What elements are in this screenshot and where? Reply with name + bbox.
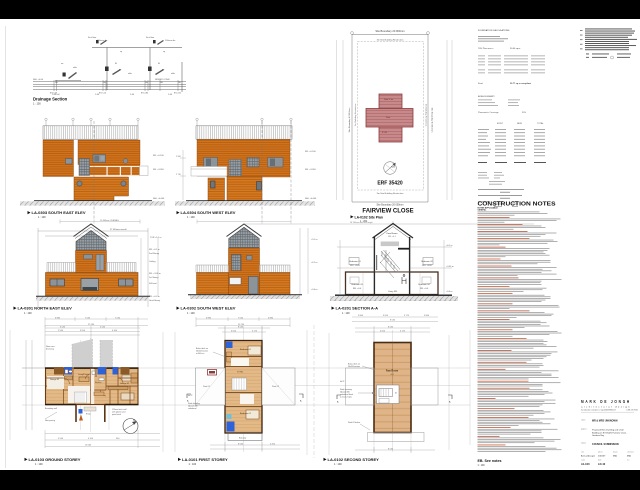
svg-text:Ceiling: Ceiling bbox=[149, 261, 156, 263]
svg-text:NGL +0.00: NGL +0.00 bbox=[33, 79, 44, 81]
svg-text:LA-0302 SOUTH WEST ELEV: LA-0302 SOUTH WEST ELEV bbox=[181, 306, 236, 311]
svg-text:TOR +9.1 m: TOR +9.1 m bbox=[150, 237, 162, 239]
svg-text:+6.1: +6.1 bbox=[390, 374, 394, 376]
svg-text:Kitchen: Kitchen bbox=[95, 381, 101, 384]
svg-text:Gordons Bay: Gordons Bay bbox=[592, 434, 605, 437]
svg-text:27 030: 27 030 bbox=[88, 324, 95, 326]
svg-text:Roof 02: Roof 02 bbox=[272, 386, 280, 388]
svg-text:date: date bbox=[598, 458, 601, 461]
svg-text:NGL +0.000: NGL +0.000 bbox=[305, 198, 317, 200]
svg-text:+9.1 m: +9.1 m bbox=[311, 239, 318, 241]
svg-text:A: A bbox=[449, 401, 451, 404]
svg-text:fall 2°: fall 2° bbox=[188, 395, 193, 397]
svg-text:FAIRVIEW CLOSE: FAIRVIEW CLOSE bbox=[362, 209, 413, 215]
svg-text:Site Boundary 43 910mm: Site Boundary 43 910mm bbox=[348, 107, 351, 132]
svg-text:NGL +0.000: NGL +0.000 bbox=[153, 198, 165, 200]
svg-text:N45: N45 bbox=[391, 167, 396, 169]
svg-text:Balcony: Balcony bbox=[239, 438, 246, 440]
svg-text:RE: RE bbox=[55, 82, 59, 84]
svg-text:wc: wc bbox=[119, 69, 122, 71]
svg-text:Living/Dining: Living/Dining bbox=[78, 374, 89, 376]
svg-text:8 530: 8 530 bbox=[238, 443, 244, 445]
svg-text:N: N bbox=[133, 418, 135, 422]
svg-text:A: A bbox=[300, 400, 302, 403]
svg-text:3 860: 3 860 bbox=[358, 315, 364, 317]
svg-text:IE: IE bbox=[158, 63, 161, 65]
svg-text:job no: job no bbox=[597, 451, 603, 453]
svg-text:FFL +3.05: FFL +3.05 bbox=[350, 265, 360, 267]
svg-text:FFL +6.1 m: FFL +6.1 m bbox=[149, 249, 160, 251]
svg-text:7 030: 7 030 bbox=[85, 317, 91, 319]
svg-text:4 100: 4 100 bbox=[112, 330, 118, 332]
svg-text:10 343mm OVERALL: 10 343mm OVERALL bbox=[100, 219, 120, 222]
svg-text:whb: whb bbox=[73, 67, 78, 69]
svg-text:+3.05 m: +3.05 m bbox=[446, 266, 454, 268]
svg-text:Boundary wall: Boundary wall bbox=[45, 407, 57, 410]
svg-text:t. 083 270 9516: t. 083 270 9516 bbox=[626, 409, 638, 412]
svg-text:30.00 sq.m: 30.00 sq.m bbox=[510, 48, 521, 50]
svg-text:2 540: 2 540 bbox=[58, 330, 64, 332]
svg-text:vp: vp bbox=[163, 51, 166, 53]
svg-text:FFL +0.0 m: FFL +0.0 m bbox=[149, 296, 160, 298]
svg-text:A1 Landscape: A1 Landscape bbox=[581, 455, 596, 458]
svg-text:LA-0102 SECOND STOREY: LA-0102 SECOND STOREY bbox=[328, 457, 380, 462]
svg-text:to manuf spec: to manuf spec bbox=[340, 396, 352, 399]
svg-text:whb: whb bbox=[171, 73, 176, 75]
svg-text:New paving: New paving bbox=[45, 420, 55, 422]
svg-text:1 : 100: 1 : 100 bbox=[189, 463, 197, 466]
svg-text:IE 14.80: IE 14.80 bbox=[141, 93, 148, 95]
svg-text:4 100: 4 100 bbox=[88, 438, 94, 440]
svg-text:+0.0 m: +0.0 m bbox=[311, 289, 318, 291]
svg-text:Garage 01: Garage 01 bbox=[50, 378, 59, 381]
svg-text:+6.1 m: +6.1 m bbox=[446, 245, 453, 247]
svg-text:First floor: First floor bbox=[88, 36, 97, 39]
svg-text:EB. See notes: EB. See notes bbox=[478, 459, 502, 463]
svg-text:100157: 100157 bbox=[598, 456, 606, 458]
svg-text:Building on Erf 35420 Fairview: Building on Erf 35420 Fairview Close, bbox=[592, 431, 627, 434]
svg-text:6 880: 6 880 bbox=[55, 317, 61, 319]
svg-text:LA-0101 FIRST STOREY: LA-0101 FIRST STOREY bbox=[182, 457, 228, 462]
svg-text:project: project bbox=[581, 428, 587, 431]
svg-text:3 175: 3 175 bbox=[400, 330, 406, 332]
svg-text:1 : 100: 1 : 100 bbox=[187, 216, 195, 219]
svg-text:8 530: 8 530 bbox=[382, 132, 388, 134]
svg-text:Roof 01: Roof 01 bbox=[203, 386, 211, 388]
svg-text:A: A bbox=[337, 401, 339, 404]
svg-text:3 050: 3 050 bbox=[80, 330, 86, 332]
svg-text:1:60: 1:60 bbox=[130, 94, 135, 96]
svg-text:1 : 100: 1 : 100 bbox=[33, 103, 41, 106]
svg-text:FFL +3.05 m: FFL +3.05 m bbox=[149, 273, 161, 275]
svg-text:wc: wc bbox=[162, 69, 165, 71]
svg-text:drawn: drawn bbox=[613, 450, 618, 453]
svg-text:MdJ: MdJ bbox=[613, 456, 617, 458]
svg-text:paint finish: paint finish bbox=[112, 413, 121, 416]
svg-text:SEWER CONN: SEWER CONN bbox=[155, 79, 170, 81]
svg-text:5 540: 5 540 bbox=[58, 438, 64, 440]
svg-text:Entry: Entry bbox=[86, 413, 90, 416]
svg-text:First floor: First floor bbox=[146, 36, 155, 39]
svg-text:vp: vp bbox=[120, 51, 123, 53]
svg-text:3m Site Building Restriction: 3m Site Building Restriction bbox=[377, 39, 405, 42]
svg-text:FFL +6.100: FFL +6.100 bbox=[153, 155, 164, 157]
svg-text:8 530: 8 530 bbox=[238, 326, 244, 328]
svg-text:size: size bbox=[581, 451, 584, 453]
svg-text:1st Storey: 1st Storey bbox=[149, 276, 159, 279]
svg-text:3 175: 3 175 bbox=[404, 315, 410, 317]
svg-text:status: status bbox=[581, 442, 586, 445]
svg-text:IE: IE bbox=[115, 63, 118, 65]
svg-text:NEW: NEW bbox=[517, 123, 522, 125]
svg-text:7 030: 7 030 bbox=[238, 317, 244, 319]
svg-text:Planametric Coverage: Planametric Coverage bbox=[478, 111, 499, 114]
svg-text:Bedroom 01: Bedroom 01 bbox=[240, 349, 252, 351]
svg-text:FFL +3.050: FFL +3.050 bbox=[305, 169, 316, 171]
svg-text:checked: checked bbox=[627, 451, 633, 453]
svg-text:t/a sebastian concepts cc reg: t/a sebastian concepts cc reg 2004/09363… bbox=[581, 409, 616, 412]
svg-text:FFL +3.050: FFL +3.050 bbox=[153, 169, 164, 171]
svg-text:A1-100: A1-100 bbox=[581, 462, 590, 466]
svg-text:IE 15.10: IE 15.10 bbox=[99, 93, 106, 95]
svg-text:Final:: Final: bbox=[478, 83, 484, 85]
svg-text:6 540: 6 540 bbox=[60, 326, 66, 328]
svg-text:3 050: 3 050 bbox=[380, 330, 386, 332]
svg-text:27 030mm overall: 27 030mm overall bbox=[110, 228, 127, 231]
svg-text:architectural design: architectural design bbox=[581, 405, 631, 408]
svg-text:Proposed New Dwelling and smal: Proposed New Dwelling and small bbox=[592, 429, 624, 432]
svg-text:FFL +6.1: FFL +6.1 bbox=[388, 236, 396, 238]
svg-text:FFL +0.0: FFL +0.0 bbox=[420, 288, 429, 290]
svg-text:3 050: 3 050 bbox=[231, 330, 237, 332]
svg-text:3 200: 3 200 bbox=[270, 443, 276, 445]
svg-text:16 060: 16 060 bbox=[85, 445, 92, 447]
svg-text:FFL +6.100: FFL +6.100 bbox=[305, 151, 316, 153]
svg-text:1 : 100: 1 : 100 bbox=[342, 312, 350, 315]
svg-text:MR & MRS UNKNOWN: MR & MRS UNKNOWN bbox=[592, 420, 618, 423]
svg-text:26 130mm max roof height: 26 130mm max roof height bbox=[350, 221, 373, 224]
svg-text:whb: whb bbox=[128, 73, 133, 75]
svg-text:fall 2°: fall 2° bbox=[340, 381, 345, 383]
svg-text:8 530: 8 530 bbox=[388, 326, 394, 328]
svg-text:FFL +3.05: FFL +3.05 bbox=[422, 265, 432, 267]
svg-text:LA-0301 NORTH EAST ELEV: LA-0301 NORTH EAST ELEV bbox=[18, 306, 73, 311]
svg-text:Site Boundary 20 000mm: Site Boundary 20 000mm bbox=[375, 29, 404, 33]
svg-text:Bedroom 02: Bedroom 02 bbox=[421, 260, 433, 263]
svg-text:70% Plan area =: 70% Plan area = bbox=[478, 47, 494, 50]
svg-text:Bedroom 02: Bedroom 02 bbox=[240, 413, 252, 415]
svg-text:2nd Storey: 2nd Storey bbox=[149, 252, 160, 255]
svg-text:7 030: 7 030 bbox=[115, 317, 121, 319]
svg-text:client: client bbox=[581, 419, 586, 422]
svg-text:driveway: driveway bbox=[46, 349, 54, 351]
svg-text:at 600 crs: at 600 crs bbox=[196, 352, 204, 355]
svg-text:FFL +0.0: FFL +0.0 bbox=[353, 288, 362, 290]
svg-text:1 : 100: 1 : 100 bbox=[478, 465, 486, 467]
svg-text:rev: rev bbox=[627, 458, 630, 461]
svg-text:RE: RE bbox=[178, 82, 182, 84]
svg-text:MARK DE JONGH: MARK DE JONGH bbox=[581, 399, 631, 404]
svg-text:3m Site Building Restriction: 3m Site Building Restriction bbox=[377, 192, 405, 195]
svg-text:Grnd Storey: Grnd Storey bbox=[149, 299, 161, 302]
svg-text:MdJ: MdJ bbox=[627, 456, 631, 458]
svg-text:ERF 35420: ERF 35420 bbox=[377, 181, 403, 187]
svg-text:1 : 100: 1 : 100 bbox=[334, 463, 342, 466]
svg-text:COUNCIL SUBMISSION: COUNCIL SUBMISSION bbox=[592, 443, 619, 446]
svg-text:LD-10: LD-10 bbox=[598, 462, 606, 466]
svg-text:GENERAL: GENERAL bbox=[478, 209, 488, 212]
svg-text:Fam Room: Fam Room bbox=[387, 233, 398, 235]
svg-text:100mm dia: 100mm dia bbox=[165, 40, 176, 42]
svg-text:scale: scale bbox=[581, 459, 585, 461]
svg-text:Bedroom 01: Bedroom 01 bbox=[349, 260, 361, 263]
svg-text:+0.0 m: +0.0 m bbox=[446, 291, 453, 293]
svg-text:3 860: 3 860 bbox=[424, 315, 430, 317]
svg-text:1 : 100: 1 : 100 bbox=[24, 312, 32, 315]
svg-text:LA-0303 SOUTH EAST ELEV: LA-0303 SOUTH EAST ELEV bbox=[32, 210, 86, 215]
svg-text:6 880: 6 880 bbox=[268, 317, 274, 319]
svg-text:Entry FFL: Entry FFL bbox=[388, 290, 398, 293]
svg-text:FOUNDATION CALCULATIONS: FOUNDATION CALCULATIONS bbox=[478, 29, 510, 32]
svg-text:Roof 9.1m: Roof 9.1m bbox=[384, 99, 394, 101]
svg-text:960: 960 bbox=[116, 438, 120, 440]
svg-text:2 710: 2 710 bbox=[176, 174, 181, 176]
svg-text:colorbond: colorbond bbox=[188, 407, 196, 410]
svg-text:Roof 02 below: Roof 02 below bbox=[348, 422, 361, 424]
svg-text:wc: wc bbox=[61, 63, 64, 65]
svg-text:50x50 bearers: 50x50 bearers bbox=[348, 365, 360, 368]
svg-text:Site Boundary 43 910mm: Site Boundary 43 910mm bbox=[431, 108, 434, 133]
svg-text:8 530: 8 530 bbox=[388, 448, 394, 450]
svg-text:AREA SUMMARY: AREA SUMMARY bbox=[478, 95, 495, 98]
svg-text:1 : 100: 1 : 100 bbox=[35, 463, 43, 466]
svg-text:Drainage Section: Drainage Section bbox=[33, 97, 68, 102]
svg-text:5 540: 5 540 bbox=[100, 326, 106, 328]
svg-text:TV Rm: TV Rm bbox=[237, 372, 244, 374]
svg-text:LA-0201 SECTION A-A: LA-0201 SECTION A-A bbox=[336, 306, 379, 311]
svg-text:Garage 02: Garage 02 bbox=[120, 382, 129, 385]
svg-text:39%: 39% bbox=[522, 112, 526, 114]
svg-text:6 880: 6 880 bbox=[206, 317, 212, 319]
svg-text:EXIST: EXIST bbox=[497, 123, 504, 125]
svg-text:8 530: 8 530 bbox=[390, 320, 396, 322]
svg-text:LA-0304 SOUTH WEST ELEV: LA-0304 SOUTH WEST ELEV bbox=[181, 210, 236, 215]
svg-text:TOTAL: TOTAL bbox=[537, 122, 544, 125]
svg-text:IE 15.43: IE 15.43 bbox=[50, 93, 57, 95]
svg-text:LA-0102 Site Plan: LA-0102 Site Plan bbox=[355, 215, 383, 219]
svg-text:2 560: 2 560 bbox=[176, 156, 181, 158]
svg-text:IE 14.52: IE 14.52 bbox=[174, 93, 181, 95]
svg-text:3m Building Restriction: 3m Building Restriction bbox=[354, 103, 357, 126]
svg-text:+6.1 m: +6.1 m bbox=[311, 262, 318, 264]
svg-text:RE: RE bbox=[160, 82, 164, 84]
svg-text:Site Boundary 20 000mm: Site Boundary 20 000mm bbox=[377, 203, 404, 206]
svg-text:Fam Room: Fam Room bbox=[386, 370, 398, 373]
svg-text:1 : 100: 1 : 100 bbox=[38, 216, 46, 219]
svg-text:3 175: 3 175 bbox=[252, 330, 258, 332]
svg-text:Roof: Roof bbox=[386, 117, 391, 119]
svg-text:3 050: 3 050 bbox=[383, 315, 389, 317]
svg-text:dn: dn bbox=[395, 393, 397, 395]
svg-text:1:60: 1:60 bbox=[168, 94, 173, 96]
svg-text:30.77 sq.m compliant: 30.77 sq.m compliant bbox=[510, 82, 531, 85]
svg-text:Sill level: Sill level bbox=[149, 283, 157, 285]
svg-text:1 : 100: 1 : 100 bbox=[187, 312, 195, 315]
svg-text:3m Building Restriction: 3m Building Restriction bbox=[425, 104, 428, 127]
svg-text:LA-0103 GROUND STOREY: LA-0103 GROUND STOREY bbox=[29, 457, 81, 462]
